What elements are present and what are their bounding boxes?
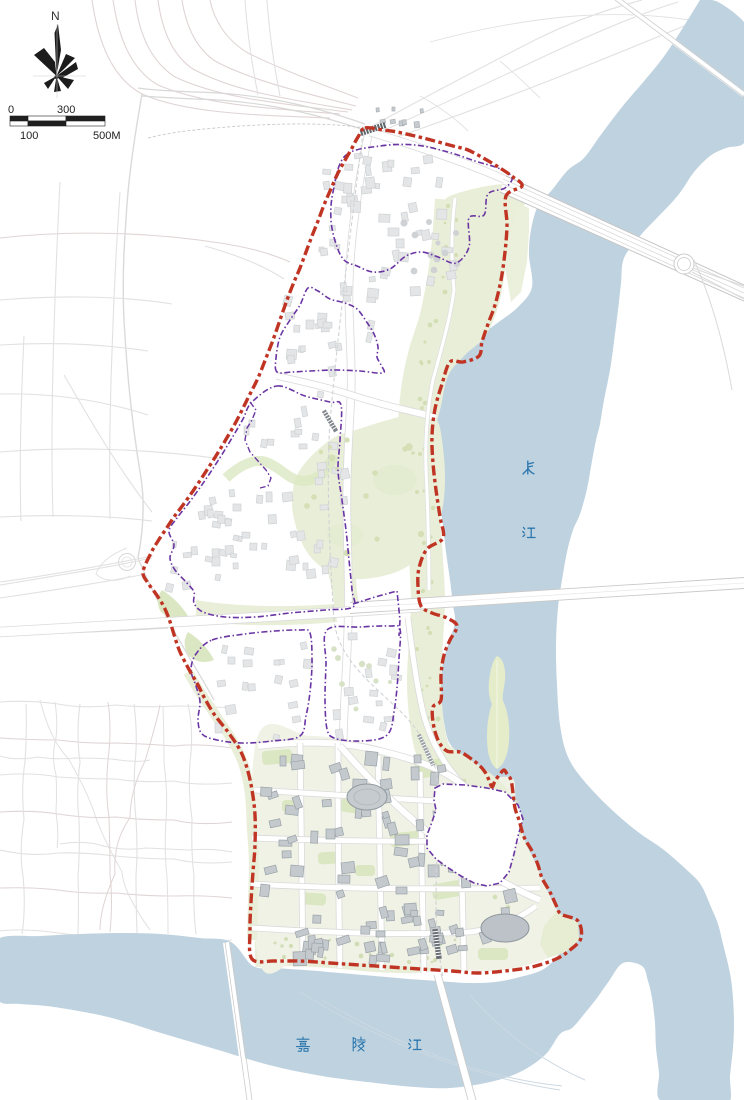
svg-text:100: 100 xyxy=(20,130,38,142)
svg-text:300: 300 xyxy=(57,104,75,116)
svg-text:500M: 500M xyxy=(93,130,121,142)
svg-text:0: 0 xyxy=(8,104,14,116)
svg-text:N: N xyxy=(51,9,60,23)
